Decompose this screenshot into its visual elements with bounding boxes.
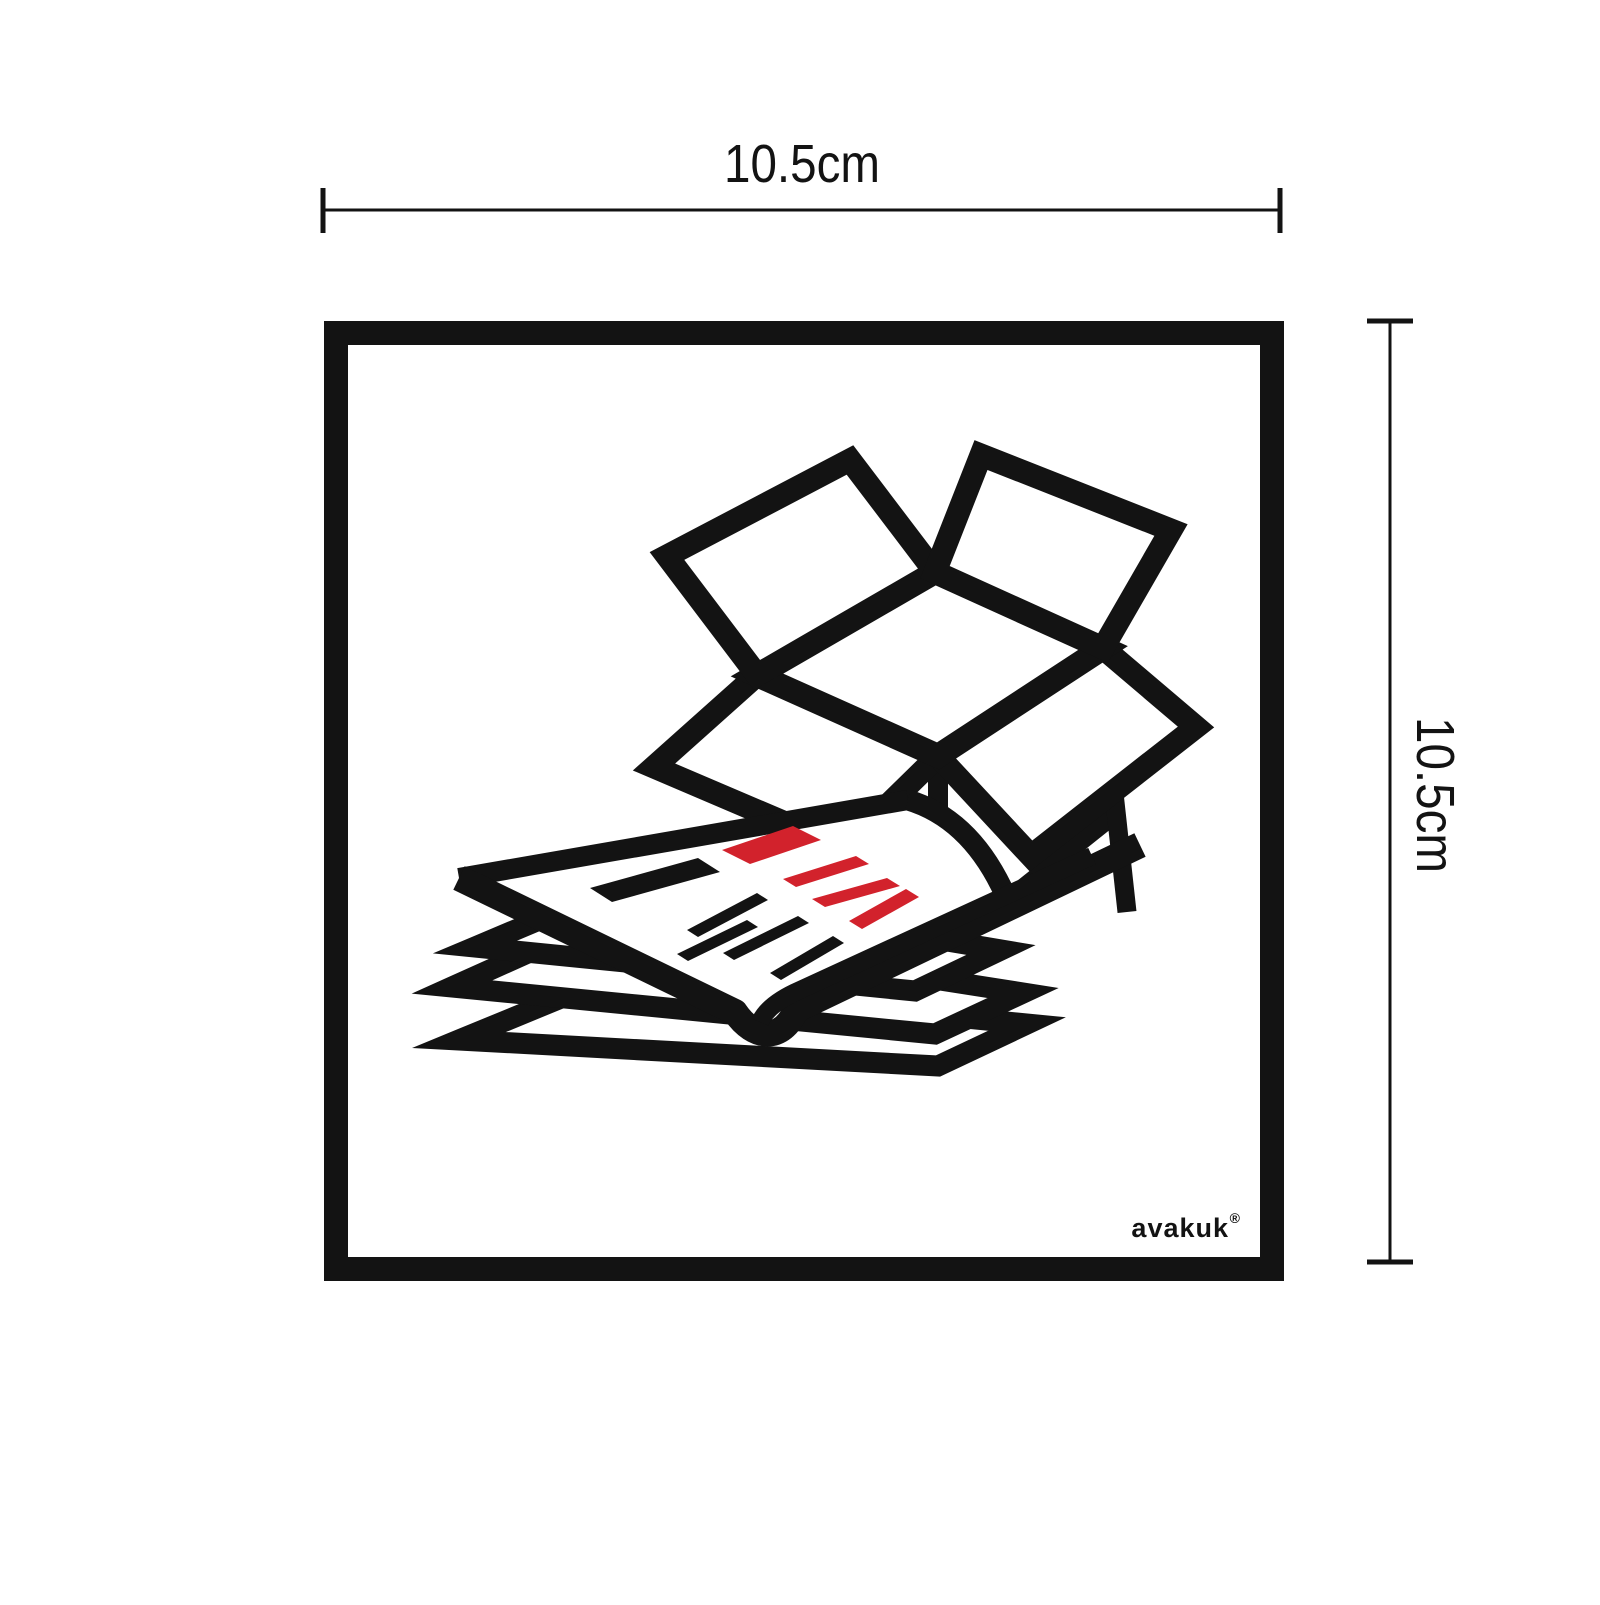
svg-text:avakuk: avakuk — [1131, 1213, 1229, 1243]
svg-text:10.5cm: 10.5cm — [1405, 717, 1465, 873]
svg-text:10.5cm: 10.5cm — [724, 134, 880, 194]
svg-text:®: ® — [1230, 1210, 1241, 1226]
